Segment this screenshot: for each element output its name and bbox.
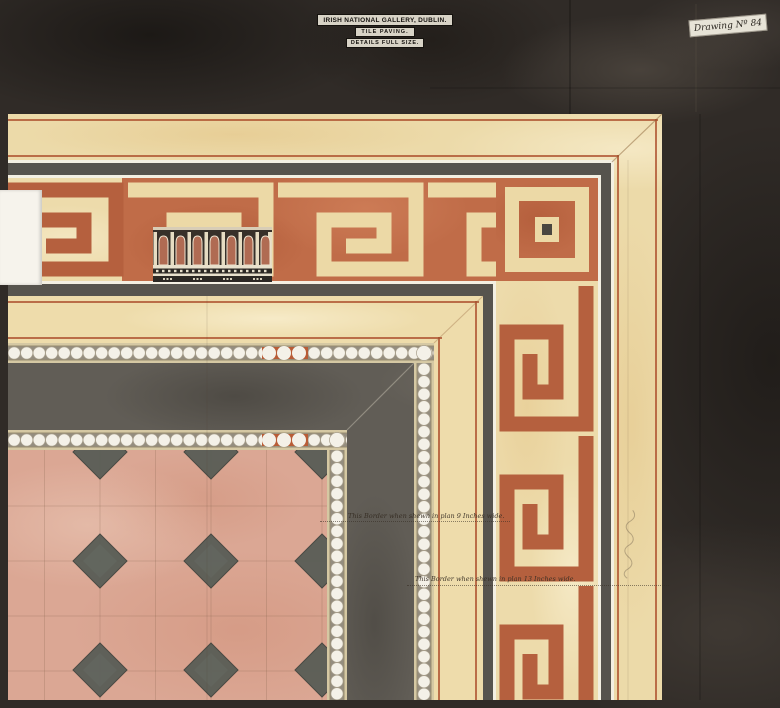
creases-and-mitre-lines <box>0 0 780 708</box>
annotation-outer-border: This Border when shewn in plan 13 Inches… <box>415 575 576 583</box>
annotation-leader-line <box>407 585 669 586</box>
title-label-tile-paving: TILE PAVING. <box>355 27 415 37</box>
title-label-details: DETAILS FULL SIZE. <box>346 38 424 48</box>
watercolour-tile-paving-drawing: This Border when shewn in plan 9 Inches … <box>0 0 780 708</box>
annotation-leader-line <box>320 521 510 522</box>
title-label-gallery: IRISH NATIONAL GALLERY, DUBLIN. <box>317 14 453 26</box>
annotation-inner-border: This Border when shewn in plan 9 Inches … <box>348 512 504 520</box>
